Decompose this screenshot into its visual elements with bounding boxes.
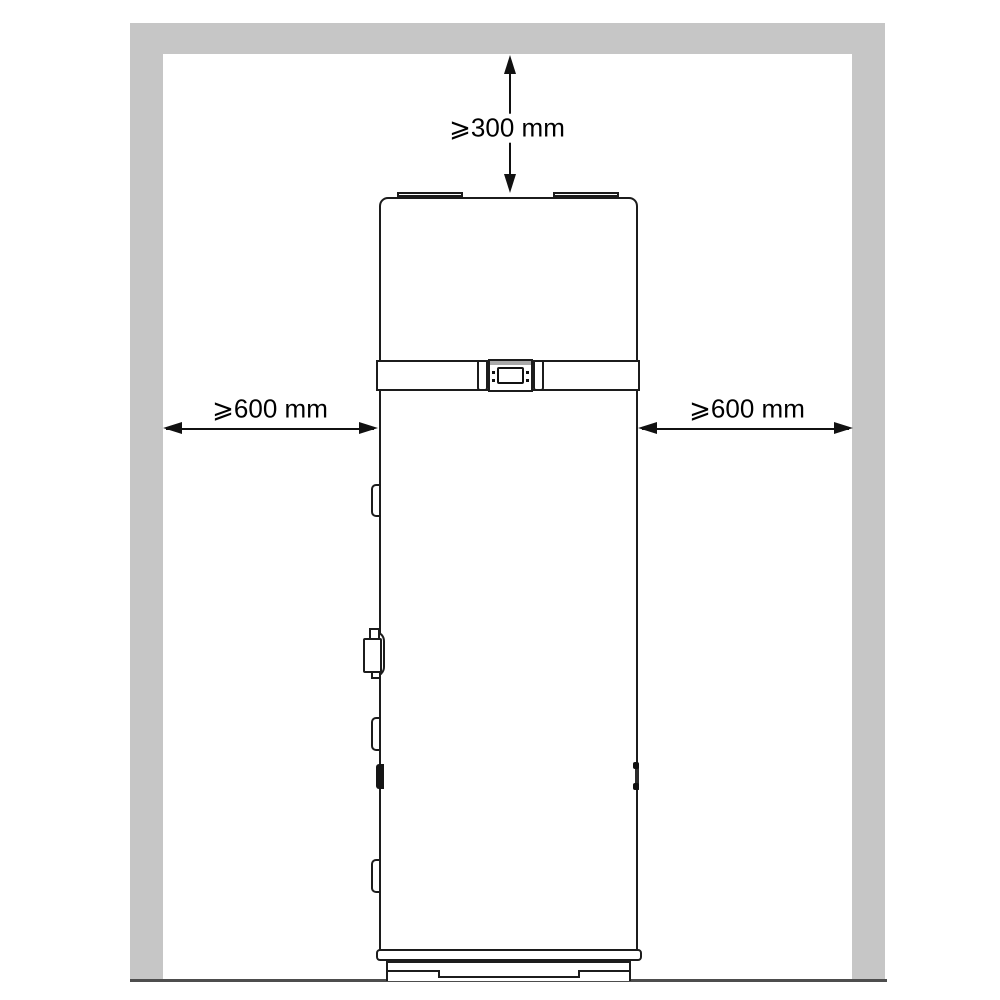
pipe-port-top: [371, 484, 381, 517]
pipe-port-middle: [371, 717, 381, 751]
top-clearance-label: ⩾300 mm: [446, 114, 568, 143]
pipe-port-bottom: [371, 859, 381, 893]
valve-junction-box: [363, 638, 382, 673]
panel-screw-dot: [526, 371, 529, 374]
panel-side-bar-right: [533, 360, 544, 391]
left-clearance-dimension-line: [166, 428, 374, 430]
door-hinge-nub: [633, 783, 639, 790]
kick-plate-line: [388, 970, 440, 972]
panel-screw-dot: [526, 379, 529, 382]
arrow-left-icon: [638, 422, 657, 434]
base-trim-band: [376, 949, 642, 961]
top-cover-seam-left: [397, 192, 463, 197]
kick-plate-line: [578, 970, 631, 972]
ceiling-wall: [130, 23, 885, 54]
panel-screw-dot: [492, 379, 495, 382]
kick-plate-line: [438, 976, 580, 978]
left-clearance-label: ⩾600 mm: [209, 395, 331, 424]
arrow-right-icon: [834, 422, 853, 434]
door-hinge-nub: [633, 762, 639, 769]
pipe-stub-dark: [376, 764, 384, 789]
panel-screw-dot: [492, 371, 495, 374]
installation-clearance-diagram: ⩾300 mm ⩾600 mm ⩾600 mm: [0, 0, 1000, 1000]
right-clearance-label: ⩾600 mm: [686, 395, 808, 424]
panel-side-bar-left: [477, 360, 488, 391]
arrow-left-icon: [163, 422, 182, 434]
display-screen: [497, 367, 524, 384]
control-panel-top-strip: [490, 361, 531, 365]
arrow-right-icon: [359, 422, 378, 434]
top-cover-seam-right: [553, 192, 619, 197]
arrow-down-icon: [504, 174, 516, 193]
valve-tab-bottom: [371, 671, 381, 679]
right-wall: [852, 23, 885, 981]
arrow-up-icon: [504, 55, 516, 74]
left-wall: [130, 23, 163, 981]
heat-pump-unit-body: [379, 197, 638, 951]
right-clearance-dimension-line: [642, 428, 849, 430]
